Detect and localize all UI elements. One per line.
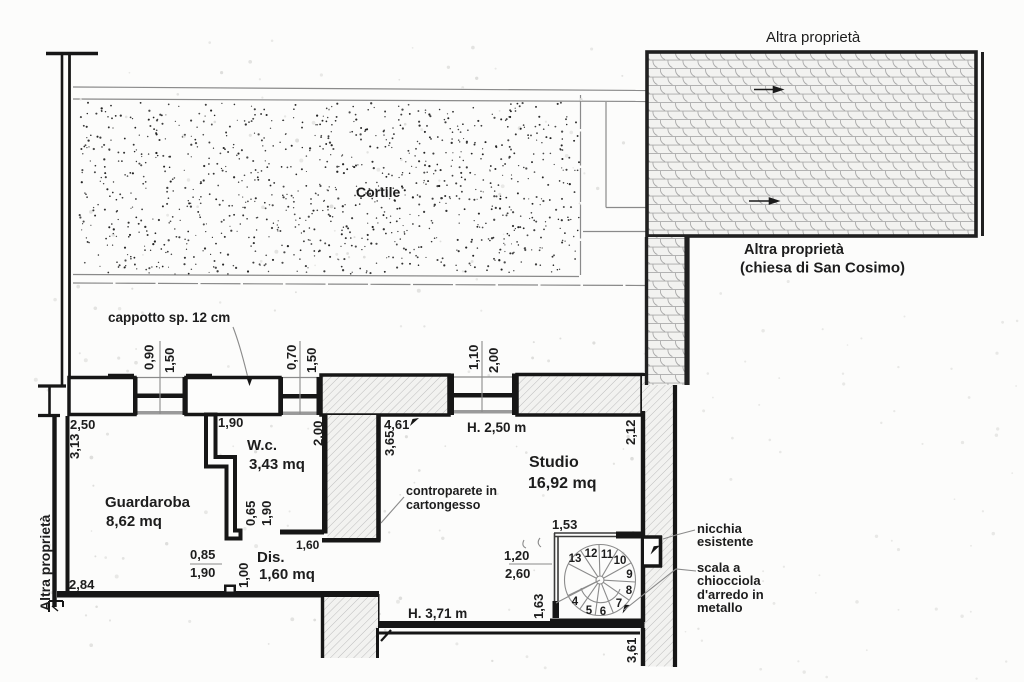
svg-text:2,60: 2,60 <box>505 566 530 581</box>
svg-text:2,12: 2,12 <box>623 420 638 445</box>
svg-text:10: 10 <box>614 555 627 567</box>
svg-text:Studio: Studio <box>529 454 579 471</box>
svg-text:W.c.: W.c. <box>247 437 277 454</box>
svg-text:1,90: 1,90 <box>259 501 274 526</box>
svg-text:cappotto sp. 12 cm: cappotto sp. 12 cm <box>108 310 230 325</box>
svg-text:2,00: 2,00 <box>311 421 326 446</box>
svg-text:metallo: metallo <box>697 600 743 615</box>
svg-text:(chiesa di San Cosimo): (chiesa di San Cosimo) <box>740 260 905 277</box>
svg-text:3,43 mq: 3,43 mq <box>249 456 305 473</box>
svg-text:12: 12 <box>585 548 598 560</box>
svg-text:Dis.: Dis. <box>257 549 285 566</box>
svg-text:5: 5 <box>586 605 593 617</box>
svg-text:3,61: 3,61 <box>624 638 639 663</box>
svg-text:4: 4 <box>572 596 579 608</box>
svg-text:Altra proprietà: Altra proprietà <box>37 514 53 611</box>
svg-text:3,65: 3,65 <box>382 431 397 456</box>
svg-text:0,65: 0,65 <box>243 501 258 526</box>
svg-text:4,61: 4,61 <box>384 417 409 432</box>
svg-text:H. 2,50 m: H. 2,50 m <box>467 420 526 435</box>
svg-text:controparete in: controparete in <box>406 484 497 498</box>
svg-text:2,84: 2,84 <box>69 577 95 592</box>
svg-text:1,00: 1,00 <box>236 563 251 588</box>
svg-text:16,92 mq: 16,92 mq <box>528 475 596 492</box>
svg-text:H. 3,71 m: H. 3,71 m <box>408 606 467 621</box>
svg-text:cartongesso: cartongesso <box>406 498 481 512</box>
svg-text:9: 9 <box>626 569 632 581</box>
svg-text:2,50: 2,50 <box>70 417 95 432</box>
svg-text:1,60: 1,60 <box>296 538 320 552</box>
svg-text:1,60 mq: 1,60 mq <box>259 566 315 583</box>
svg-text:chiocciola: chiocciola <box>697 573 761 588</box>
svg-text:1,10: 1,10 <box>466 345 481 370</box>
svg-text:1,90: 1,90 <box>218 415 243 430</box>
svg-text:8: 8 <box>626 585 633 597</box>
svg-text:1,90: 1,90 <box>190 565 215 580</box>
svg-text:0,90: 0,90 <box>142 345 157 370</box>
svg-text:1,53: 1,53 <box>552 517 577 532</box>
svg-text:Altra proprietà: Altra proprietà <box>744 242 845 258</box>
svg-text:11: 11 <box>601 549 614 561</box>
svg-text:0,70: 0,70 <box>284 345 299 370</box>
svg-text:Cortile: Cortile <box>356 184 401 200</box>
svg-text:1,63: 1,63 <box>531 594 546 619</box>
svg-text:1,50: 1,50 <box>304 348 319 373</box>
svg-text:1,20: 1,20 <box>504 548 529 563</box>
svg-text:7: 7 <box>616 598 622 610</box>
svg-text:2,00: 2,00 <box>486 348 501 373</box>
svg-text:3,13: 3,13 <box>67 434 82 459</box>
svg-text:6: 6 <box>600 606 606 618</box>
svg-text:esistente: esistente <box>697 534 753 549</box>
svg-text:13: 13 <box>569 553 582 565</box>
svg-text:8,62 mq: 8,62 mq <box>106 513 162 530</box>
svg-text:1,50: 1,50 <box>162 348 177 373</box>
svg-text:Guardaroba: Guardaroba <box>105 494 191 511</box>
svg-text:0,85: 0,85 <box>190 547 215 562</box>
svg-text:Altra proprietà: Altra proprietà <box>766 29 861 46</box>
